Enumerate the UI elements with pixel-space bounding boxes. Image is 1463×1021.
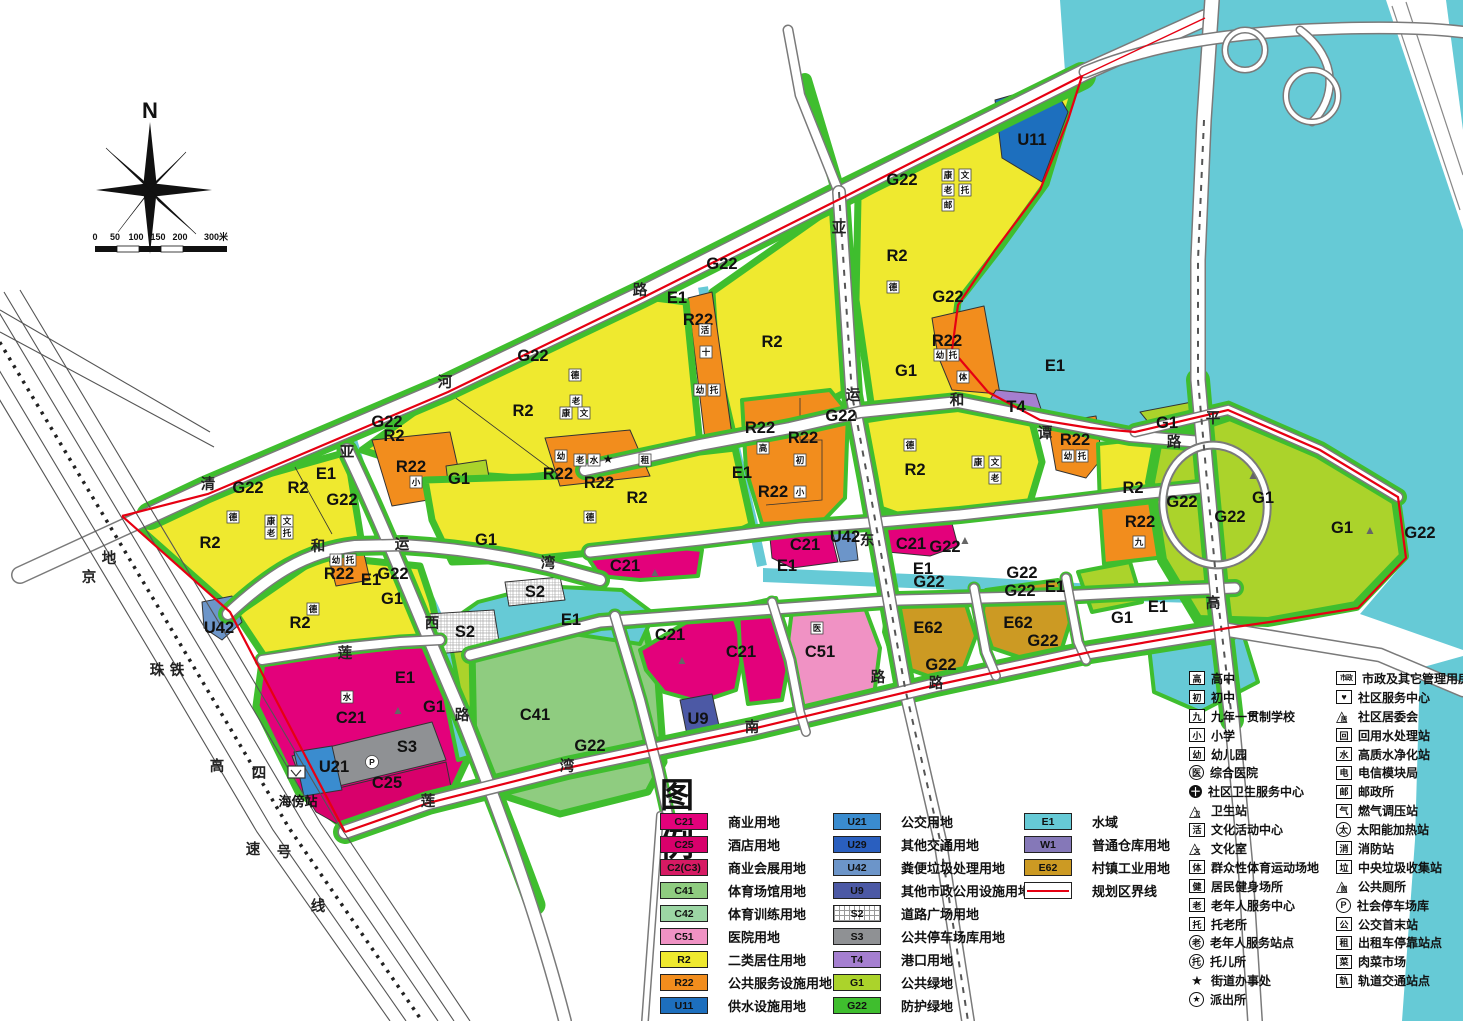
legend-label: 其他市政公用设施用地 bbox=[901, 881, 1031, 900]
facility-icon-char: 水 bbox=[342, 692, 352, 702]
facility-legend-icon: 健 bbox=[1189, 879, 1205, 893]
zone-label-G22: G22 bbox=[574, 737, 605, 755]
zone-label-R22: R22 bbox=[324, 565, 354, 583]
zone-label-C21: C21 bbox=[336, 709, 366, 727]
legend-label: 体育训练用地 bbox=[728, 904, 806, 923]
legend-row: C25酒店用地 bbox=[660, 833, 832, 856]
legend-row: S3公共停车场库用地 bbox=[833, 925, 1031, 948]
legend-row: U9其他市政公用设施用地 bbox=[833, 879, 1031, 902]
facility-icon-char: 康 bbox=[974, 457, 983, 467]
facility-legend-icon: 托 bbox=[1189, 954, 1204, 969]
facility-legend-row: 菜肉菜市场 bbox=[1336, 952, 1463, 971]
legend-label: 酒店用地 bbox=[728, 835, 780, 854]
legend-column-1: C21商业用地C25酒店用地C2(C3)商业会展用地C41体育场馆用地C42体育… bbox=[660, 810, 832, 1017]
parking-icon-letter: P bbox=[369, 757, 375, 767]
road-name-char: 高 bbox=[210, 757, 225, 775]
zone-label-R22: R22 bbox=[745, 419, 775, 437]
legend-swatch: U21 bbox=[833, 813, 881, 830]
station-label: 海傍站 bbox=[278, 794, 317, 809]
facility-icon-char: 初 bbox=[796, 455, 805, 465]
legend-label: 商业用地 bbox=[728, 812, 780, 831]
legend-label: 公共绿地 bbox=[901, 973, 953, 992]
facility-legend-label: 邮政所 bbox=[1358, 783, 1394, 800]
facility-icon-char: 文 bbox=[580, 408, 589, 418]
facility-legend-row: 太太阳能加热站 bbox=[1336, 820, 1463, 839]
facility-legend-icon: 小 bbox=[1189, 728, 1205, 742]
facility-icon-char: 体 bbox=[959, 372, 968, 382]
zone-label-E62: E62 bbox=[1003, 614, 1032, 632]
zone-label-R2: R2 bbox=[383, 427, 404, 445]
zone-label-U42: U42 bbox=[204, 619, 234, 637]
zone-label-G1: G1 bbox=[423, 698, 445, 716]
legend-column-2: U21公交用地U29其他交通用地U42粪便垃圾处理用地U9其他市政公用设施用地S… bbox=[833, 810, 1031, 1017]
zone-label-R2: R2 bbox=[886, 247, 907, 265]
zone-label-G1: G1 bbox=[895, 362, 917, 380]
facility-legend-row: 邮邮政所 bbox=[1336, 782, 1463, 801]
road-name-char: 速 bbox=[246, 840, 261, 858]
facility-legend-label: 卫生站 bbox=[1211, 802, 1247, 819]
facility-icon-char: 德 bbox=[586, 512, 595, 522]
facility-legend-row: P社会停车场库 bbox=[1336, 896, 1463, 915]
facility-legend-label: 幼儿园 bbox=[1211, 746, 1247, 763]
legend-row: U29其他交通用地 bbox=[833, 833, 1031, 856]
facility-legend-row: 健居民健身场所 bbox=[1189, 877, 1319, 896]
legend-swatch: E1 bbox=[1024, 813, 1072, 830]
facility-legend-icon: 初 bbox=[1189, 690, 1205, 704]
legend-row: S2道路广场用地 bbox=[833, 902, 1031, 925]
facility-legend-label: 文化活动中心 bbox=[1211, 821, 1283, 838]
zone-label-S2: S2 bbox=[525, 583, 545, 601]
facility-legend-label: 回用水处理站 bbox=[1358, 727, 1430, 744]
scale-bar bbox=[95, 246, 227, 252]
road-name-char: 珠 bbox=[150, 661, 165, 679]
facility-legend-icon: 邮 bbox=[1336, 785, 1352, 799]
legend-label: 公共服务设施用地 bbox=[728, 973, 832, 992]
road-name-char: 湾 bbox=[541, 554, 556, 572]
facility-icon-char: 活 bbox=[701, 325, 710, 335]
facility-icon-char: 康 bbox=[944, 170, 953, 180]
road-name-char: 亚 bbox=[832, 220, 847, 237]
facility-legend-label: 轨道交通站点 bbox=[1358, 972, 1430, 989]
facility-legend-icon: 活 bbox=[1189, 823, 1205, 837]
zone-label-C21: C21 bbox=[790, 536, 820, 554]
facility-legend-label: 公交首末站 bbox=[1358, 916, 1418, 933]
zone-label-R2: R2 bbox=[289, 614, 310, 632]
facility-legend-icon: 垃 bbox=[1336, 860, 1352, 874]
facility-triangle-icon: ▲ bbox=[676, 653, 688, 667]
facility-icon-char: 德 bbox=[229, 512, 238, 522]
facility-legend-row: 消消防站 bbox=[1336, 839, 1463, 858]
scale-tick: 150 bbox=[150, 232, 165, 242]
zone-label-R22: R22 bbox=[543, 465, 573, 483]
zone-label-G22: G22 bbox=[925, 656, 956, 674]
road-name-char: 四 bbox=[252, 766, 267, 782]
zone-label-G1: G1 bbox=[1156, 414, 1178, 432]
facility-legend-label: 文化室 bbox=[1211, 840, 1247, 857]
zone-label-C41: C41 bbox=[520, 706, 550, 724]
planning-map-page: N U11G22R2G22G22E1R22R2G1R22T4E1G22R2G22… bbox=[0, 0, 1463, 1021]
zone-label-G22: G22 bbox=[1006, 564, 1037, 582]
legend-swatch: C42 bbox=[660, 905, 708, 922]
road-name-char: 线 bbox=[311, 897, 326, 915]
zone-label-E1: E1 bbox=[395, 669, 415, 687]
zone-label-G22: G22 bbox=[1166, 493, 1197, 511]
facility-legend-row: 气燃气调压站 bbox=[1336, 801, 1463, 820]
facility-icon-char: 租 bbox=[641, 455, 650, 465]
legend-column-3: E1水域W1普通仓库用地E62村镇工业用地规划区界线 bbox=[1024, 810, 1170, 902]
legend-row: R2二类居住用地 bbox=[660, 948, 832, 971]
facility-icon-char: 十 bbox=[702, 347, 711, 357]
facility-legend-icon: ★ bbox=[1189, 992, 1204, 1007]
legend-swatch: R22 bbox=[660, 974, 708, 991]
zone-label-G22: G22 bbox=[326, 491, 357, 509]
facility-legend-row: 厕公共厕所 bbox=[1336, 877, 1463, 896]
zone-label-R2: R2 bbox=[287, 479, 308, 497]
zone-label-G1: G1 bbox=[1252, 489, 1274, 507]
road-name-char: 湾 bbox=[560, 757, 575, 775]
facility-legend-label: 老年人服务中心 bbox=[1211, 897, 1295, 914]
zone-label-U9: U9 bbox=[687, 710, 708, 728]
zone-label-R2: R2 bbox=[761, 333, 782, 351]
legend-row: G22防护绿地 bbox=[833, 994, 1031, 1017]
zone-label-R2: R2 bbox=[626, 489, 647, 507]
facility-legend-column-1: 高高中初初中九九年一贯制学校小小学幼幼儿园医综合医院十社区卫生服务中心卫卫生站活… bbox=[1189, 669, 1319, 1009]
legend-label: 防护绿地 bbox=[901, 996, 953, 1015]
facility-legend-label: 街道办事处 bbox=[1211, 972, 1271, 989]
legend-swatch: R2 bbox=[660, 951, 708, 968]
zone-label-R22: R22 bbox=[932, 332, 962, 350]
facility-legend-row: 水高质水净化站 bbox=[1336, 745, 1463, 764]
legend-label: 普通仓库用地 bbox=[1092, 835, 1170, 854]
facility-triangle-icon: ▲ bbox=[1364, 523, 1376, 537]
facility-legend-label: 社区居委会 bbox=[1358, 708, 1418, 725]
legend-swatch: C2(C3) bbox=[660, 859, 708, 876]
facility-legend-icon: 回 bbox=[1336, 728, 1352, 742]
zone-label-G22: G22 bbox=[1214, 508, 1245, 526]
zone-label-R22: R22 bbox=[396, 458, 426, 476]
facility-legend-label: 托儿所 bbox=[1210, 953, 1246, 970]
zone-label-G22: G22 bbox=[1404, 524, 1435, 542]
zone-label-G22: G22 bbox=[913, 573, 944, 591]
facility-legend-label: 公共厕所 bbox=[1358, 878, 1406, 895]
facility-legend-icon: 老 bbox=[1189, 935, 1204, 950]
road-name-char: 铁 bbox=[170, 661, 185, 679]
road-name-char: 路 bbox=[1167, 433, 1182, 451]
legend-row: C21商业用地 bbox=[660, 810, 832, 833]
facility-legend-row: 居社区居委会 bbox=[1336, 707, 1463, 726]
road-name-char: 河 bbox=[438, 373, 453, 391]
facility-legend-icon: 电 bbox=[1336, 766, 1352, 780]
facility-legend-icon: 托 bbox=[1189, 917, 1205, 931]
facility-legend-icon: 消 bbox=[1336, 841, 1352, 855]
road-name-char: 路 bbox=[633, 281, 648, 299]
facility-legend-row: 垃中央垃圾收集站 bbox=[1336, 858, 1463, 877]
facility-legend-label: 出租车停靠站点 bbox=[1358, 934, 1442, 951]
legend-label: 村镇工业用地 bbox=[1092, 858, 1170, 877]
facility-legend-label: 中央垃圾收集站 bbox=[1358, 859, 1442, 876]
facility-legend-label: 老年人服务站点 bbox=[1210, 934, 1294, 951]
zone-label-G1: G1 bbox=[381, 590, 403, 608]
road-name-char: 路 bbox=[929, 674, 944, 692]
facility-legend-row: 老老年人服务站点 bbox=[1189, 933, 1319, 952]
legend-row: U42粪便垃圾处理用地 bbox=[833, 856, 1031, 879]
zone-label-T4: T4 bbox=[1006, 398, 1026, 416]
facility-icon-char: 托 bbox=[949, 350, 958, 360]
facility-legend-label: 市政及其它管理用房 bbox=[1362, 670, 1463, 687]
facility-legend-row: 托托儿所 bbox=[1189, 952, 1319, 971]
facility-legend-row: ★派出所 bbox=[1189, 990, 1319, 1009]
facility-legend-label: 燃气调压站 bbox=[1358, 802, 1418, 819]
road-name-char: 和 bbox=[311, 538, 326, 555]
zone-label-E1: E1 bbox=[777, 557, 797, 575]
facility-legend-label: 综合医院 bbox=[1210, 764, 1258, 781]
zone-label-G22: G22 bbox=[886, 171, 917, 189]
road-name-char: 清 bbox=[201, 475, 216, 493]
facility-legend-label: 九年一贯制学校 bbox=[1211, 708, 1295, 725]
facility-legend-row: 卫卫生站 bbox=[1189, 801, 1319, 820]
legend-swatch: C41 bbox=[660, 882, 708, 899]
facility-icon-char: 幼 bbox=[696, 385, 705, 395]
facility-legend-label: 托老所 bbox=[1211, 916, 1247, 933]
legend-label: 规划区界线 bbox=[1092, 881, 1157, 900]
legend-row: C41体育场馆用地 bbox=[660, 879, 832, 902]
facility-legend-icon: 九 bbox=[1189, 709, 1205, 723]
legend-row: G1公共绿地 bbox=[833, 971, 1031, 994]
facility-legend-icon: 太 bbox=[1336, 822, 1351, 837]
facility-legend-label: 高质水净化站 bbox=[1358, 746, 1430, 763]
zone-label-G1: G1 bbox=[475, 531, 497, 549]
facility-icon-char: 康 bbox=[267, 516, 276, 526]
zone-label-G22: G22 bbox=[377, 565, 408, 583]
facility-icon-char: 老 bbox=[575, 455, 585, 465]
legend-swatch: C21 bbox=[660, 813, 708, 830]
zone-label-G1: G1 bbox=[1111, 609, 1133, 627]
facility-legend-label: 太阳能加热站 bbox=[1357, 821, 1429, 838]
facility-icon-char: 托 bbox=[1078, 451, 1087, 461]
legend-label: 医院用地 bbox=[728, 927, 780, 946]
legend-row: E62村镇工业用地 bbox=[1024, 856, 1170, 879]
zone-label-G22: G22 bbox=[232, 479, 263, 497]
facility-legend-icon: 文 bbox=[1189, 841, 1205, 855]
legend-swatch: S2 bbox=[833, 905, 881, 922]
facility-legend-row: 体群众性体育运动场地 bbox=[1189, 858, 1319, 877]
facility-legend-icon: 十 bbox=[1189, 785, 1202, 798]
road-name-char: 东 bbox=[860, 531, 875, 549]
road-name-char: 路 bbox=[871, 668, 886, 686]
legend-row: T4港口用地 bbox=[833, 948, 1031, 971]
facility-legend-icon: 市政 bbox=[1336, 671, 1356, 685]
facility-legend-icon: P bbox=[1336, 898, 1351, 913]
facility-icon-char: 德 bbox=[571, 370, 580, 380]
scale-tick: 0 bbox=[92, 232, 97, 242]
zone-label-E62: E62 bbox=[913, 619, 942, 637]
road-name-char: 运 bbox=[846, 387, 861, 404]
zone-label-U11: U11 bbox=[1017, 131, 1046, 149]
facility-icon-char: 小 bbox=[795, 487, 805, 497]
facility-legend-icon: 厕 bbox=[1336, 879, 1352, 893]
facility-legend-row: 高高中 bbox=[1189, 669, 1319, 688]
street-office-icon: ★ bbox=[603, 452, 614, 466]
legend-swatch: G22 bbox=[833, 997, 881, 1014]
facility-icon-char: 邮 bbox=[944, 200, 953, 210]
legend-swatch: U11 bbox=[660, 997, 708, 1014]
facility-triangle-icon: ▲ bbox=[959, 533, 971, 547]
road-name-char: 地 bbox=[102, 549, 117, 567]
facility-icon-char: 小 bbox=[411, 477, 421, 487]
legend-swatch: U9 bbox=[833, 882, 881, 899]
zone-label-S2: S2 bbox=[455, 623, 475, 641]
legend-label: 道路广场用地 bbox=[901, 904, 979, 923]
facility-legend-row: 租出租车停靠站点 bbox=[1336, 933, 1463, 952]
facility-icon-char: 水 bbox=[589, 455, 599, 465]
facility-legend-label: 社区卫生服务中心 bbox=[1208, 783, 1304, 800]
legend-label: 公共停车场库用地 bbox=[901, 927, 1005, 946]
zone-label-C21: C21 bbox=[610, 557, 640, 575]
facility-legend-label: 群众性体育运动场地 bbox=[1211, 859, 1319, 876]
zone-label-R22: R22 bbox=[758, 483, 788, 501]
zone-label-E1: E1 bbox=[316, 465, 336, 483]
zone-label-R2: R2 bbox=[904, 461, 925, 479]
road-name-char: 南 bbox=[745, 718, 760, 736]
legend-row: R22公共服务设施用地 bbox=[660, 971, 832, 994]
facility-icon-char: 托 bbox=[961, 185, 970, 195]
facility-legend-icon: ★ bbox=[1189, 974, 1205, 988]
facility-legend-icon: 公 bbox=[1336, 917, 1352, 931]
facility-icon-char: 德 bbox=[906, 440, 915, 450]
legend-row: C42体育训练用地 bbox=[660, 902, 832, 925]
road-name-char: 和 bbox=[950, 392, 965, 409]
facility-legend-icon: 租 bbox=[1336, 936, 1352, 950]
zone-label-G22: G22 bbox=[929, 538, 960, 556]
legend-swatch bbox=[1024, 882, 1072, 899]
zone-label-C21: C21 bbox=[655, 626, 685, 644]
legend-row: W1普通仓库用地 bbox=[1024, 833, 1170, 856]
facility-icon-char: 德 bbox=[309, 604, 318, 614]
zone-label-G22: G22 bbox=[1027, 632, 1058, 650]
legend-row: C2(C3)商业会展用地 bbox=[660, 856, 832, 879]
facility-legend-column-2: 市政市政及其它管理用房♥社区服务中心居社区居委会回回用水处理站水高质水净化站电电… bbox=[1336, 669, 1463, 990]
facility-legend-icon: 卫 bbox=[1189, 804, 1205, 818]
facility-legend-icon: 老 bbox=[1189, 898, 1205, 912]
scale-ticks: 050100150200300米 bbox=[92, 231, 229, 242]
road-name-char: 莲 bbox=[338, 644, 353, 662]
facility-triangle-icon: ▲ bbox=[1247, 468, 1259, 482]
legend-swatch: U29 bbox=[833, 836, 881, 853]
facility-icon-char: 文 bbox=[283, 516, 292, 526]
legend-swatch: S3 bbox=[833, 928, 881, 945]
facility-icon-char: 高 bbox=[759, 443, 768, 453]
facility-legend-row: 轨轨道交通站点 bbox=[1336, 971, 1463, 990]
scale-tick: 200 bbox=[172, 232, 187, 242]
facility-legend-row: 公公交首末站 bbox=[1336, 915, 1463, 934]
legend-row: U21公交用地 bbox=[833, 810, 1031, 833]
facility-legend-row: 小小学 bbox=[1189, 726, 1319, 745]
zone-label-E1: E1 bbox=[667, 289, 687, 307]
zone-label-E1: E1 bbox=[561, 611, 581, 629]
facility-legend-icon: 气 bbox=[1336, 804, 1352, 818]
legend-swatch: G1 bbox=[833, 974, 881, 991]
facility-icon-char: 老 bbox=[943, 185, 953, 195]
facility-legend-icon: 高 bbox=[1189, 671, 1205, 685]
road-name-char: 莲 bbox=[421, 792, 436, 810]
zone-label-C21: C21 bbox=[896, 535, 926, 553]
zone-label-U21: U21 bbox=[319, 758, 349, 776]
road-name-char: 平 bbox=[1206, 410, 1221, 427]
zone-label-G22: G22 bbox=[1004, 582, 1035, 600]
legend-label: 粪便垃圾处理用地 bbox=[901, 858, 1005, 877]
facility-legend-label: 初中 bbox=[1211, 689, 1235, 706]
zone-label-G22: G22 bbox=[706, 255, 737, 273]
facility-triangle-icon: ▲ bbox=[649, 565, 661, 579]
legend-swatch: E62 bbox=[1024, 859, 1072, 876]
road-name-char: 运 bbox=[395, 536, 410, 553]
zone-label-R22: R22 bbox=[1125, 513, 1155, 531]
facility-legend-icon: ♥ bbox=[1336, 690, 1352, 704]
facility-legend-label: 高中 bbox=[1211, 670, 1235, 687]
legend-label: 二类居住用地 bbox=[728, 950, 806, 969]
legend-row: 规划区界线 bbox=[1024, 879, 1170, 902]
legend-swatch: U42 bbox=[833, 859, 881, 876]
facility-icon-char: 托 bbox=[283, 528, 292, 538]
zone-label-R2: R2 bbox=[1122, 479, 1143, 497]
facility-icon-char: 幼 bbox=[936, 350, 945, 360]
facility-legend-label: 肉菜市场 bbox=[1358, 953, 1406, 970]
facility-icon-char: 托 bbox=[346, 555, 355, 565]
legend-row: E1水域 bbox=[1024, 810, 1170, 833]
facility-legend-row: 老老年人服务中心 bbox=[1189, 896, 1319, 915]
facility-icon-char: 德 bbox=[889, 282, 898, 292]
zone-label-E1: E1 bbox=[1045, 578, 1065, 596]
road-name-char: 号 bbox=[277, 844, 292, 861]
facility-legend-row: 幼幼儿园 bbox=[1189, 745, 1319, 764]
legend-row: C51医院用地 bbox=[660, 925, 832, 948]
road-name-char: 高 bbox=[1206, 594, 1221, 612]
zone-label-R2: R2 bbox=[512, 402, 533, 420]
legend-label: 港口用地 bbox=[901, 950, 953, 969]
zone-label-E1: E1 bbox=[1045, 357, 1065, 375]
facility-legend-icon: 幼 bbox=[1189, 747, 1205, 761]
facility-legend-icon: 居 bbox=[1336, 709, 1352, 723]
zone-label-R22: R22 bbox=[788, 429, 818, 447]
legend-label: 水域 bbox=[1092, 812, 1118, 831]
legend-swatch: C51 bbox=[660, 928, 708, 945]
legend-swatch: W1 bbox=[1024, 836, 1072, 853]
facility-legend-label: 社区服务中心 bbox=[1358, 689, 1430, 706]
zone-label-G22: G22 bbox=[825, 407, 856, 425]
scale-tick: 50 bbox=[110, 232, 120, 242]
facility-legend-row: ★街道办事处 bbox=[1189, 971, 1319, 990]
facility-legend-row: 医综合医院 bbox=[1189, 763, 1319, 782]
zone-label-G22: G22 bbox=[932, 288, 963, 306]
facility-legend-label: 消防站 bbox=[1358, 840, 1394, 857]
station-name: 海傍站 bbox=[278, 794, 317, 809]
facility-icon-char: 幼 bbox=[332, 555, 341, 565]
zone-label-E1: E1 bbox=[1148, 598, 1168, 616]
legend-label: 体育场馆用地 bbox=[728, 881, 806, 900]
facility-legend-icon: 医 bbox=[1189, 765, 1204, 780]
road-name-char: 西 bbox=[425, 615, 440, 632]
facility-icon-char: 文 bbox=[991, 457, 1000, 467]
station-marker bbox=[288, 766, 305, 778]
zone-label-G22: G22 bbox=[517, 347, 548, 365]
legend-row: U11供水设施用地 bbox=[660, 994, 832, 1017]
scale-tick: 300米 bbox=[204, 231, 229, 242]
facility-legend-row: 电电信模块局 bbox=[1336, 763, 1463, 782]
facility-icon-char: 托 bbox=[710, 385, 719, 395]
facility-legend-icon: 体 bbox=[1189, 860, 1205, 874]
facility-legend-icon: 菜 bbox=[1336, 955, 1352, 969]
facility-legend-row: ♥社区服务中心 bbox=[1336, 688, 1463, 707]
